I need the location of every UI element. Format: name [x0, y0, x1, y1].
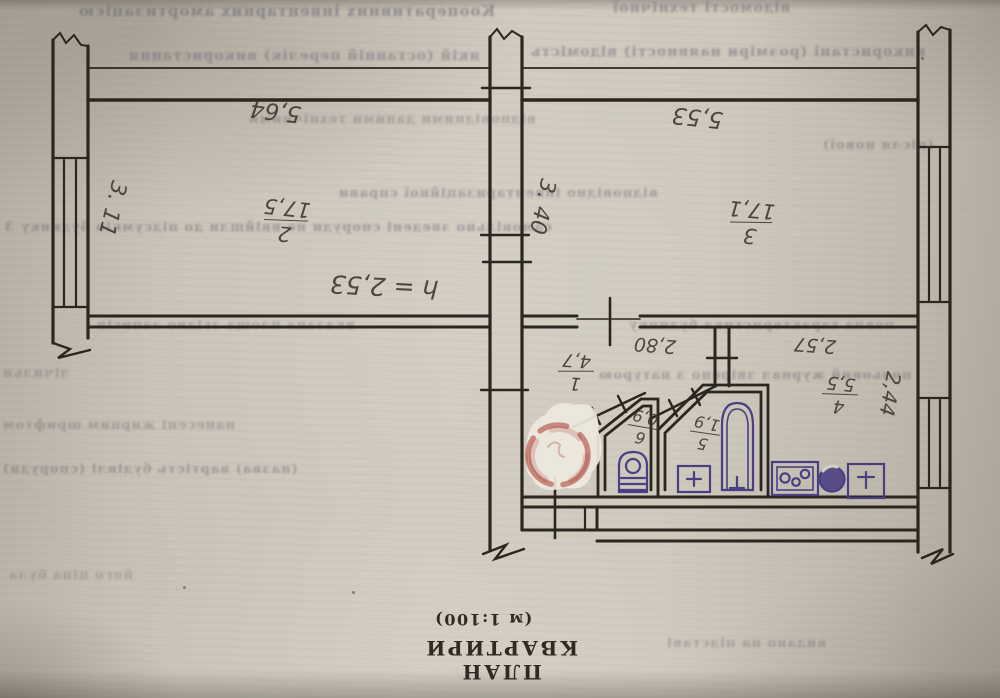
bathroom-sink-icon	[678, 466, 710, 492]
dim-room3-width: 5,53	[671, 101, 725, 132]
kitchen-sink-round-icon	[820, 466, 845, 491]
room-area: 17,5	[262, 194, 312, 220]
window-room3-icon	[918, 147, 950, 302]
room-label-kitchen: 4 5,5	[818, 371, 862, 417]
room-number: 1	[555, 372, 596, 393]
ceiling-height-note: h = 2,53	[329, 269, 439, 304]
toilet-icon	[619, 452, 647, 492]
kitchen-table-icon	[848, 464, 884, 498]
room-area: 17,1	[728, 196, 776, 221]
left-outer-wall	[53, 33, 90, 358]
room-area: 5,5	[820, 371, 862, 393]
floor-plan-drawing	[0, 0, 1000, 698]
stamp	[527, 403, 602, 490]
middle-wall	[88, 316, 918, 327]
scale-note: (м 1:100)	[380, 610, 586, 629]
dim-hall-width: 2,80	[633, 333, 677, 358]
page-title: ПЛАН КВАРТИРИ	[398, 636, 604, 684]
bathtub-icon	[722, 403, 753, 490]
window-room2-icon	[53, 158, 88, 307]
room-label-3: 3 17,1	[726, 196, 776, 248]
room-label-2: 2 17,5	[260, 194, 313, 247]
room-area: 4,7	[556, 349, 597, 370]
right-outer-wall	[918, 25, 953, 564]
stove-icon	[772, 462, 818, 495]
room-label-hall: 1 4,7	[555, 349, 598, 393]
dim-kitchen-width: 2,57	[793, 333, 837, 358]
bottom-walls	[522, 497, 918, 541]
center-wall	[481, 29, 531, 559]
window-kitchen-icon	[918, 398, 950, 488]
fraction-bar	[730, 221, 772, 223]
title-block: ПЛАН КВАРТИРИ (м 1:100)	[398, 610, 604, 684]
hall-kitchen-wall	[707, 327, 737, 386]
photographed-floor-plan-document: Кооперативних інвентарних амортизацією в…	[0, 0, 1000, 698]
room-number: 3	[726, 222, 774, 247]
fraction-bar	[558, 370, 594, 371]
